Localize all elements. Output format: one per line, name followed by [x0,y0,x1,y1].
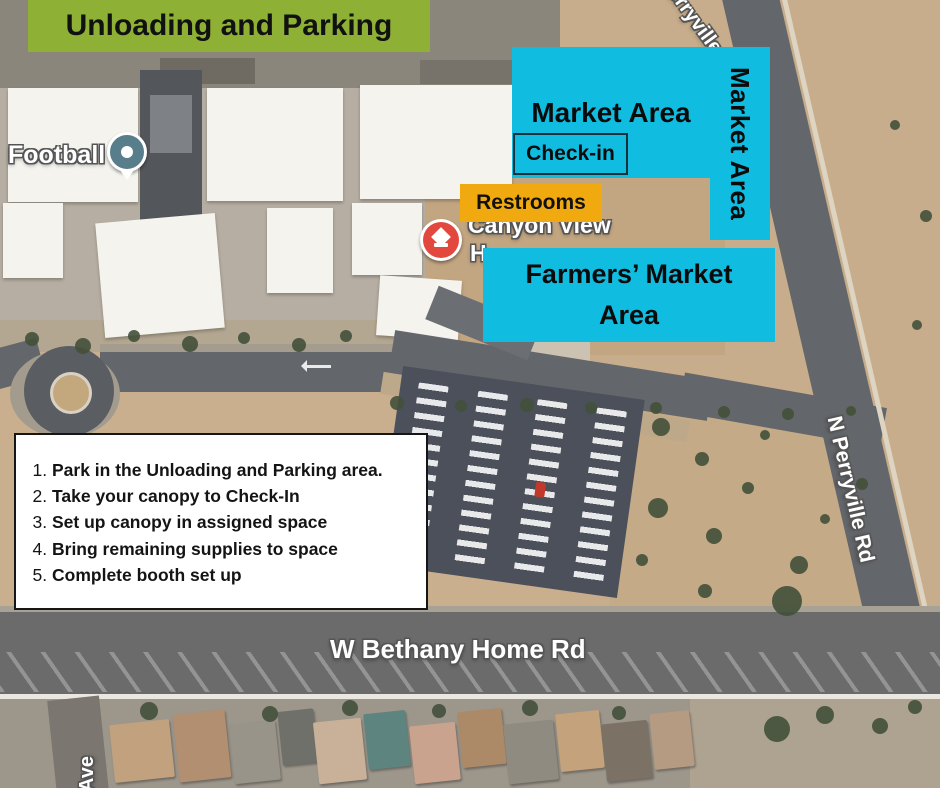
vegetation-blob [760,430,770,440]
farmers-market-area-box: Farmers’ Market Area [483,248,775,342]
house-roof [649,710,695,770]
football-pin-tail-icon [120,170,134,187]
house-roof [457,708,507,768]
vegetation-blob [652,418,670,436]
graduation-cap-base [434,243,448,247]
instruction-item: Park in the Unloading and Parking area. [52,457,420,483]
house-roof [277,708,318,765]
vegetation-blob [772,586,802,616]
vegetation-blob [742,482,754,494]
vegetation-blob [520,398,534,412]
vegetation-blob [340,330,352,342]
farmers-market-label-line2: Area [599,295,659,336]
house-roof [313,718,367,785]
market-area-vertical-box: Market Area [710,47,770,240]
vegetation-blob [522,700,538,716]
vegetation-blob [342,700,358,716]
instruction-item: Take your canopy to Check-In [52,483,420,509]
vegetation-blob [182,336,198,352]
vegetation-blob [455,400,467,412]
building [267,208,333,293]
vegetation-blob [612,706,626,720]
campus-road-1 [100,352,415,392]
vegetation-blob [846,406,856,416]
vegetation-blob [920,210,932,222]
vegetation-blob [820,514,830,524]
instruction-item: Set up canopy in assigned space [52,509,420,535]
road-label-bethany: W Bethany Home Rd [330,634,586,665]
house-roof [109,719,175,783]
football-pin-icon [107,132,147,172]
vegetation-blob [706,528,722,544]
vegetation-blob [698,584,712,598]
vegetation-blob [292,338,306,352]
unloading-parking-banner: Unloading and Parking [28,0,430,52]
setup-instructions-list: Park in the Unloading and Parking area. … [16,457,426,588]
school-marker-icon [420,219,462,261]
vegetation-blob [140,702,158,720]
left-arrow-icon [305,365,331,368]
red-car [534,482,546,498]
vegetation-blob [912,320,922,330]
vegetation-blob [872,718,888,734]
vegetation-blob [890,120,900,130]
vegetation-blob [432,704,446,718]
building [360,85,512,199]
farmers-market-label-line1: Farmers’ Market [525,254,732,295]
house-roof [363,710,411,770]
vegetation-blob [816,706,834,724]
neighborhood-desert-corner [690,699,940,788]
market-area-label: Market Area [512,97,710,129]
vegetation-blob [390,396,404,410]
vegetation-blob [25,332,39,346]
building [207,88,343,201]
football-field-label: Football [8,141,105,170]
parked-cars-row [573,407,627,585]
setup-instructions-box: Park in the Unloading and Parking area. … [14,433,428,610]
house-roof [409,722,461,784]
vegetation-blob [75,338,91,354]
house-roof [601,720,653,782]
vegetation-blob [790,556,808,574]
vegetation-blob [650,402,662,414]
vegetation-blob [585,402,597,414]
restrooms-box: Restrooms [460,184,602,222]
house-roof [173,709,232,782]
parked-cars-row [454,391,508,569]
vegetation-blob [718,406,730,418]
house-roof [555,710,605,772]
vegetation-blob [648,498,668,518]
roundabout-island [50,372,92,414]
vegetation-blob [238,332,250,344]
vegetation-blob [262,706,278,722]
vegetation-blob [128,330,140,342]
instruction-item: Complete booth set up [52,562,420,588]
check-in-box: Check-in [513,133,628,175]
market-area-vertical-label: Market Area [725,67,755,220]
building [95,213,225,338]
instruction-item: Bring remaining supplies to space [52,536,420,562]
road-label-ave: Ave [76,756,99,788]
shade-structure-roof [150,95,192,153]
house-roof [503,720,559,785]
vegetation-blob [636,554,648,566]
building [3,203,63,278]
vegetation-blob [695,452,709,466]
unloading-parking-map: Football Canyon View H N Perryville Rd N… [0,0,940,788]
vegetation-blob [764,716,790,742]
house-roof [229,720,281,784]
building [352,203,422,275]
vegetation-blob [908,700,922,714]
vegetation-blob [782,408,794,420]
